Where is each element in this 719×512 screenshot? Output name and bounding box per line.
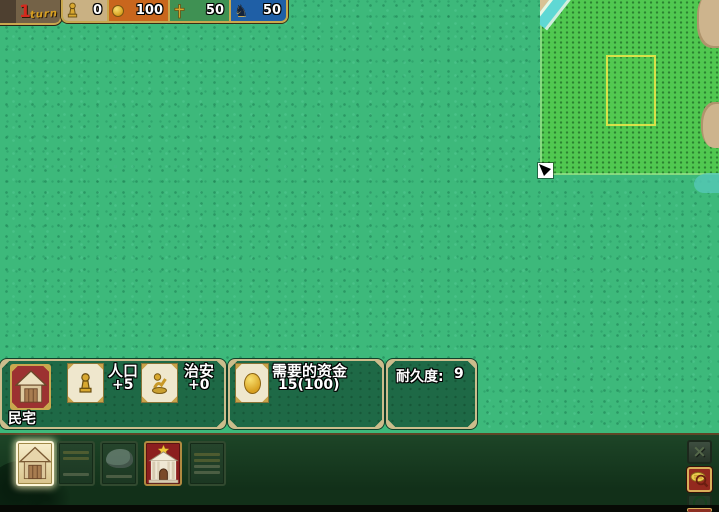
population-value: +5 (112, 377, 133, 393)
placement-footprint-outline (606, 55, 656, 126)
resource-gold: 100 (107, 0, 168, 21)
selected-building-icon (10, 364, 51, 410)
sand-patch (701, 102, 719, 148)
gold-count: 100 (136, 3, 163, 18)
coin-icon (244, 373, 261, 394)
wall-icon (63, 451, 89, 454)
pawn-icon (66, 2, 79, 19)
partial-button[interactable] (687, 508, 712, 512)
bottom-border (0, 505, 719, 512)
build-toolbar (0, 433, 719, 512)
cross-icon (173, 3, 186, 19)
mouse-cursor-icon (538, 163, 553, 178)
building-info-panel: 民宅 人口 +5 治安 +0 (0, 359, 226, 429)
knight-count: 50 (263, 3, 281, 18)
magnifier-button[interactable] (687, 494, 712, 505)
house-icon (15, 369, 47, 405)
pawn-icon (77, 372, 94, 395)
security-stat-box (141, 363, 178, 403)
cost-coin-box (235, 363, 269, 403)
rock-icon (106, 449, 133, 468)
storage-icon (194, 453, 220, 456)
faith-count: 50 (206, 3, 224, 18)
resource-bar: 0 100 50 ♞ 50 (61, 0, 288, 23)
durability-value: 9 (454, 366, 464, 382)
close-icon: × (692, 444, 706, 461)
cost-value: 15(100) (278, 377, 340, 393)
coin-icon (112, 5, 124, 17)
cost-panel: 需要的资金 15(100) (228, 359, 384, 429)
tool-church-button[interactable] (144, 441, 182, 486)
guard-icon (148, 371, 171, 395)
magnifier-icon (693, 496, 707, 506)
tool-storage-button[interactable] (188, 441, 226, 486)
resource-population: 0 (63, 0, 107, 21)
population-stat-box (67, 363, 104, 403)
building-name: 民宅 (8, 408, 36, 428)
resource-knights: ♞ 50 (229, 0, 286, 21)
placement-area-highlight[interactable] (540, 0, 719, 175)
resource-faith: 50 (168, 0, 229, 21)
durability-label: 耐久度: (396, 366, 444, 386)
turn-label: turn (30, 8, 59, 21)
tool-house-button[interactable] (16, 441, 54, 486)
knight-icon: ♞ (234, 3, 248, 19)
security-value: +0 (188, 377, 209, 393)
house-icon (19, 445, 51, 482)
durability-panel: 耐久度: 9 (386, 359, 477, 429)
church-icon (147, 444, 180, 484)
tool-wall-button[interactable] (57, 441, 95, 486)
water-patch (694, 173, 719, 193)
river (540, 0, 575, 30)
magnifier-coin-icon (690, 471, 709, 488)
turn-counter: 1 turn (0, 0, 63, 26)
game-screen: 1 turn 0 100 50 ♞ 50 (0, 0, 719, 512)
inspect-gold-button[interactable] (687, 467, 712, 492)
close-button[interactable]: × (687, 440, 712, 464)
population-count: 0 (93, 3, 102, 18)
tool-rock-button[interactable] (100, 441, 138, 486)
sand-patch (697, 0, 719, 48)
